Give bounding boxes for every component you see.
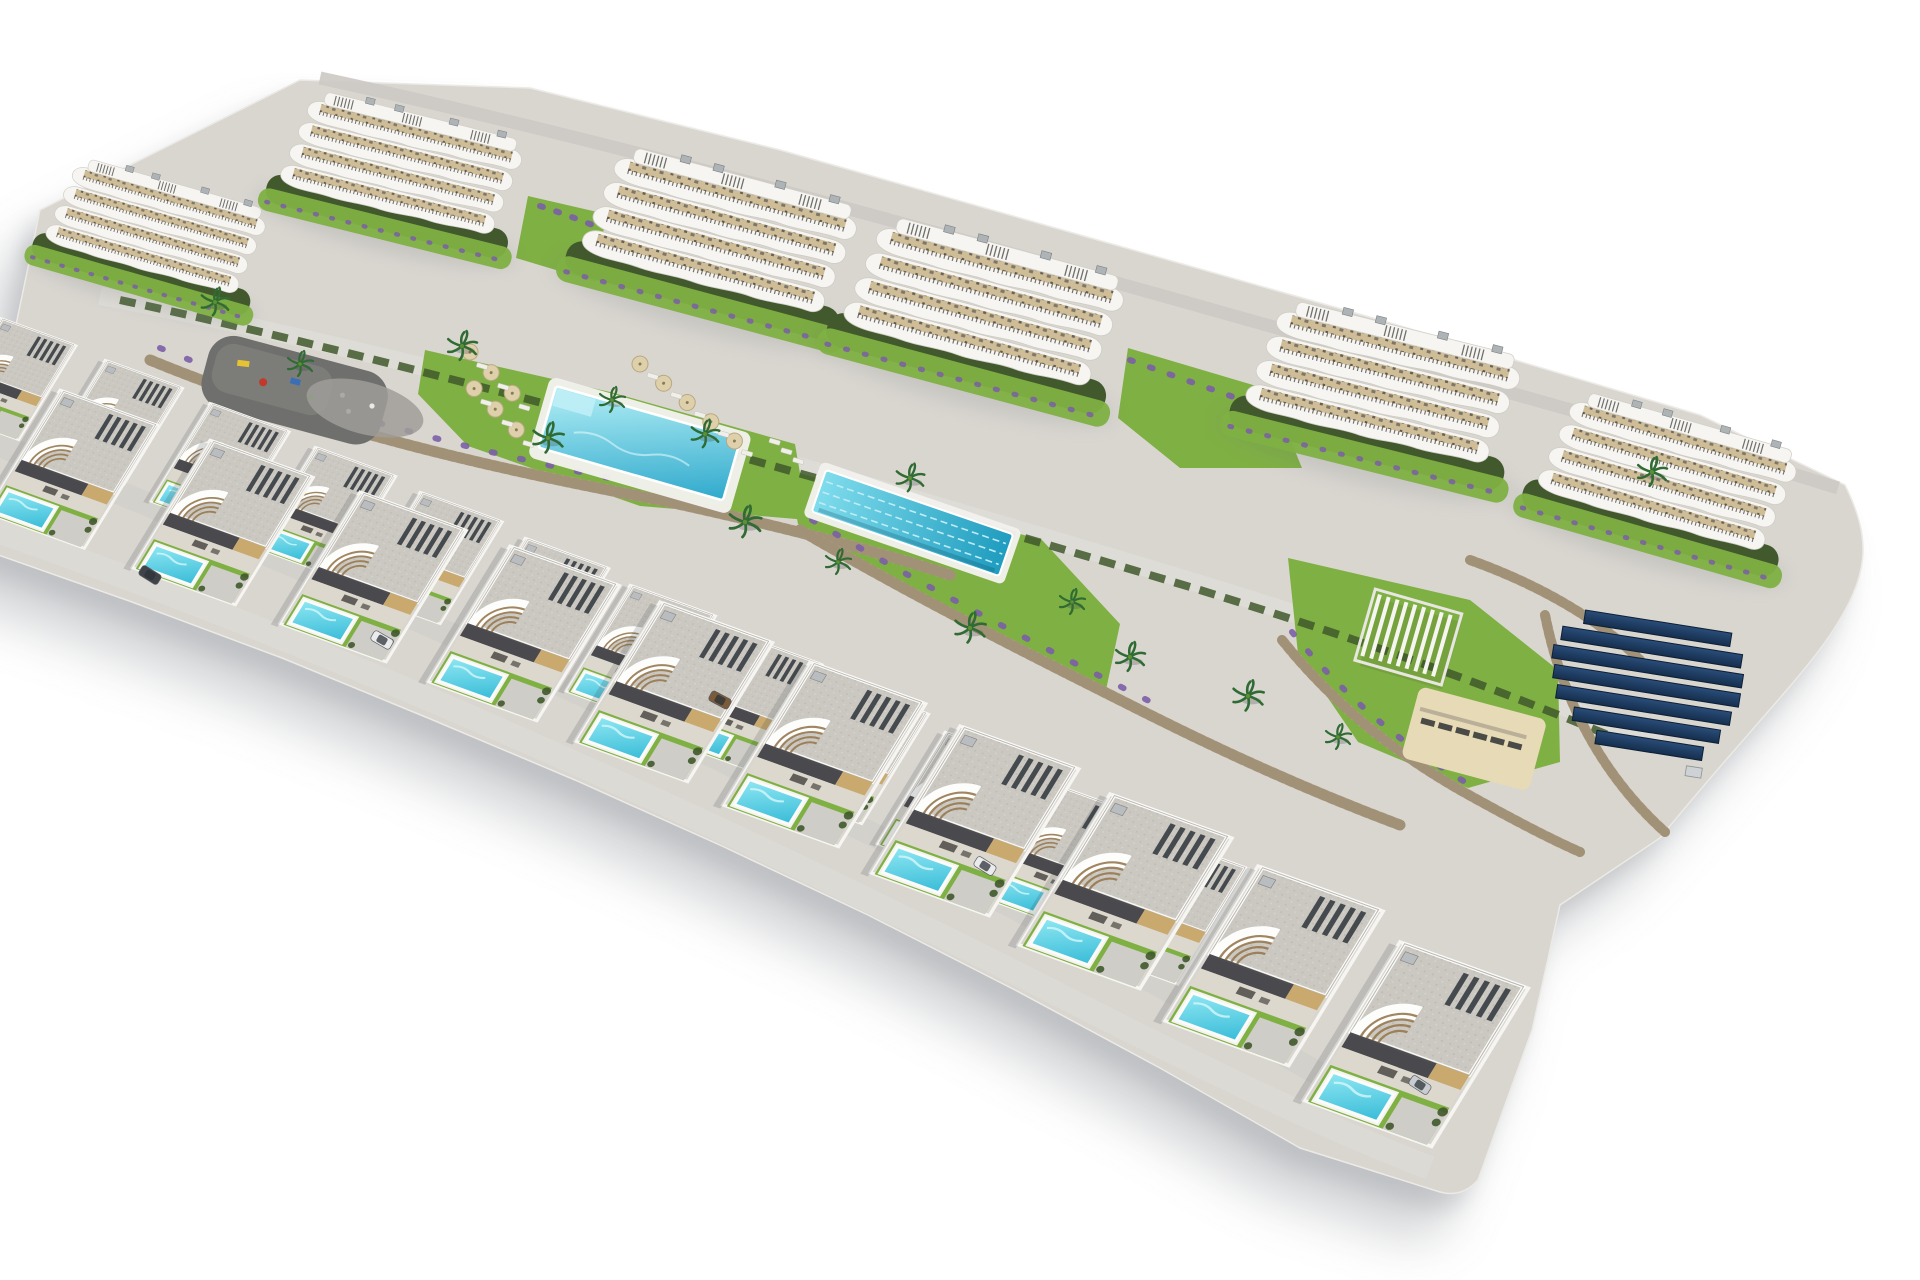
aerial-site-render-canvas: Aerial 3D architectural render of a hill… [0, 0, 1920, 1280]
architectural-render: Aerial 3D architectural render of a hill… [0, 0, 1920, 1280]
